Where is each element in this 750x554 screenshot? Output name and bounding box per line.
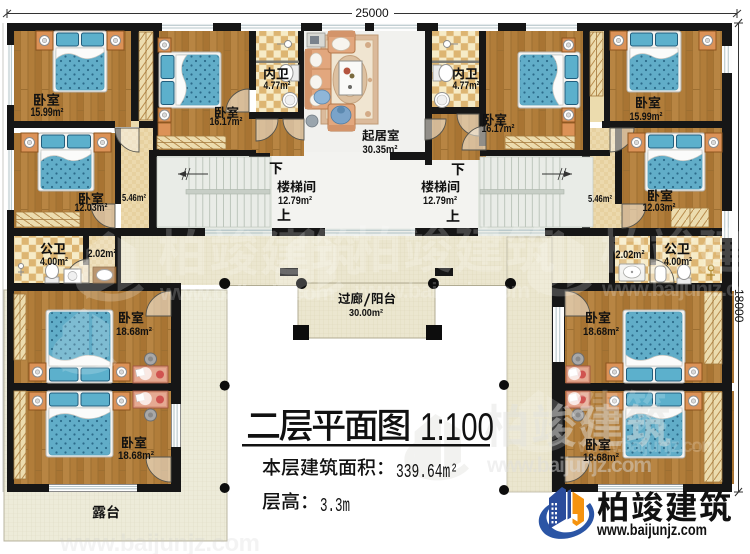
svg-text:18.68m²: 18.68m²	[583, 326, 619, 338]
svg-text:15.99m²: 15.99m²	[630, 111, 663, 123]
svg-text:2.02m²: 2.02m²	[88, 248, 117, 260]
svg-text:339.64m²: 339.64m²	[396, 461, 458, 483]
svg-text:30.00m²: 30.00m²	[349, 307, 383, 319]
svg-text:30.35m²: 30.35m²	[363, 144, 398, 156]
svg-text:www.baijunjz.com: www.baijunjz.com	[596, 522, 707, 539]
svg-text:4.77m²: 4.77m²	[453, 80, 480, 92]
svg-text:4.00m²: 4.00m²	[664, 256, 692, 268]
svg-text:3.3m: 3.3m	[320, 495, 350, 517]
svg-text:www.baijunjz.com: www.baijunjz.com	[601, 278, 750, 301]
svg-text:5.46m²: 5.46m²	[588, 193, 612, 205]
svg-text:5.46m²: 5.46m²	[122, 192, 146, 204]
svg-text:1:100: 1:100	[420, 406, 494, 449]
svg-text:18.68m²: 18.68m²	[116, 326, 152, 338]
svg-text:18.68m²: 18.68m²	[118, 450, 154, 462]
svg-text:2.02m²: 2.02m²	[616, 249, 645, 261]
svg-text:12.03m²: 12.03m²	[75, 202, 108, 214]
svg-text:www.baijunjz.com: www.baijunjz.com	[486, 454, 652, 477]
svg-text:15.99m²: 15.99m²	[31, 107, 64, 119]
svg-text:25000: 25000	[355, 6, 389, 20]
svg-text:12.79m²: 12.79m²	[423, 195, 457, 207]
svg-text:www.baijunjz.com: www.baijunjz.com	[59, 530, 260, 554]
svg-text:16.17m²: 16.17m²	[210, 116, 243, 128]
svg-text:12.79m²: 12.79m²	[278, 195, 312, 207]
svg-text:16.17m²: 16.17m²	[482, 123, 515, 135]
svg-text:4.00m²: 4.00m²	[40, 256, 68, 268]
svg-text:www.baijunjz.com: www.baijunjz.com	[354, 278, 530, 303]
svg-text:12.03m²: 12.03m²	[643, 202, 676, 214]
svg-text:4.77m²: 4.77m²	[264, 80, 291, 92]
svg-text:18.68m²: 18.68m²	[583, 452, 619, 464]
